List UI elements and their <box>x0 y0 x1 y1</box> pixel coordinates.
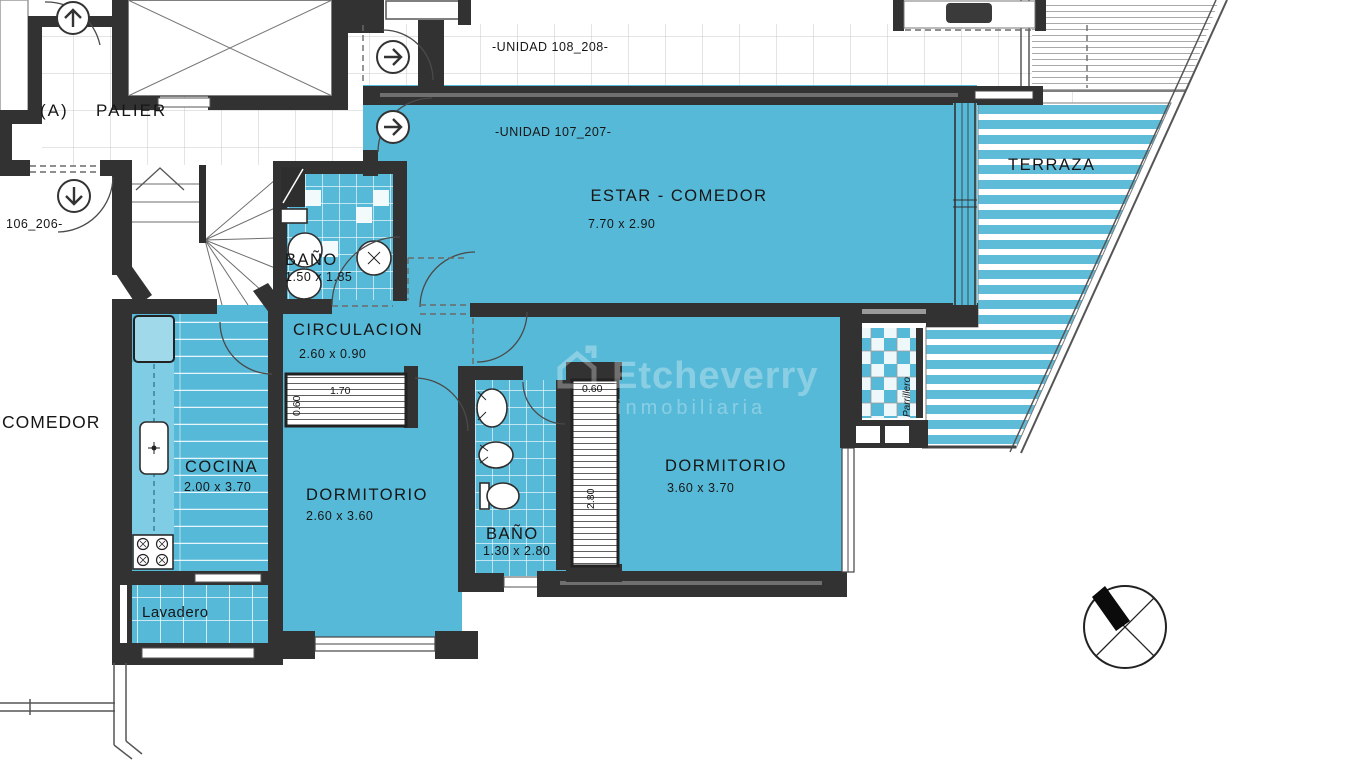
cocina-floor <box>160 310 278 575</box>
entry-door-arrow-icon-unit107 <box>377 111 409 143</box>
north-compass-icon <box>1084 586 1166 668</box>
estar-comedor-label: ESTAR - COMEDOR <box>590 187 767 205</box>
placard1-depth: 0.60 <box>291 395 303 416</box>
section-letter: (A) <box>40 101 69 120</box>
unit-107-label: -UNIDAD 107_207- <box>495 125 611 139</box>
bano2-dim: 1.30 x 2.80 <box>483 544 550 558</box>
parrillero-label: Parrillero <box>902 377 913 417</box>
placard1-width: 1.70 <box>330 385 351 397</box>
staircase <box>112 165 284 314</box>
circulacion-dim: 2.60 x 0.90 <box>299 347 366 361</box>
unit-106-label: 106_206- <box>6 217 63 231</box>
floor-plan: Etcheverry inmobiliaria (A) PALIER -UNID… <box>0 0 1365 766</box>
placard-dorm1 <box>286 374 406 426</box>
bano2-label: BAÑO <box>486 523 539 543</box>
watermark-brand: Etcheverry <box>612 355 818 397</box>
elevator-shaft <box>112 0 348 110</box>
dormitorio2-dim: 3.60 x 3.70 <box>667 481 734 495</box>
bidet-2 <box>479 442 513 468</box>
balcony-rail <box>0 663 142 759</box>
fridge <box>134 316 174 362</box>
bano1-dim: 1.50 x 1.85 <box>285 270 352 284</box>
sliding-door <box>953 103 977 305</box>
watermark-tagline: inmobiliaria <box>617 397 766 419</box>
kitchen-equipment <box>132 316 174 569</box>
bano1-label: BAÑO <box>285 249 338 269</box>
entry-door-arrow-icon-unit108 <box>377 41 409 73</box>
washbasin-2 <box>477 389 507 427</box>
elevator-up-arrow-icon <box>57 2 89 34</box>
cocina-dim: 2.00 x 3.70 <box>184 480 251 494</box>
top-fixture <box>946 3 992 23</box>
floor-plan-drawing: Etcheverry inmobiliaria (A) PALIER -UNID… <box>0 0 1365 766</box>
dormitorio2-label: DORMITORIO <box>665 457 787 475</box>
dormitorio1-label: DORMITORIO <box>306 486 428 504</box>
stairs-down-arrow-icon <box>58 180 90 212</box>
dormitorio1-dim: 2.60 x 3.60 <box>306 509 373 523</box>
placard-dorm2 <box>572 380 618 566</box>
cocina-label: COCINA <box>185 458 258 476</box>
placard2-depth: 0.60 <box>582 383 603 395</box>
toilet-2 <box>487 483 519 509</box>
neighbor-comedor-label: COMEDOR <box>2 412 100 432</box>
palier-label: PALIER <box>96 101 167 120</box>
terraza-label: TERRAZA <box>1008 156 1096 174</box>
lavadero-label: Lavadero <box>142 604 209 621</box>
circulacion-label: CIRCULACION <box>293 321 423 339</box>
unit-108-label: -UNIDAD 108_208- <box>492 40 608 54</box>
placard2-height: 2.80 <box>585 488 597 509</box>
estar-comedor-dim: 7.70 x 2.90 <box>588 217 655 231</box>
